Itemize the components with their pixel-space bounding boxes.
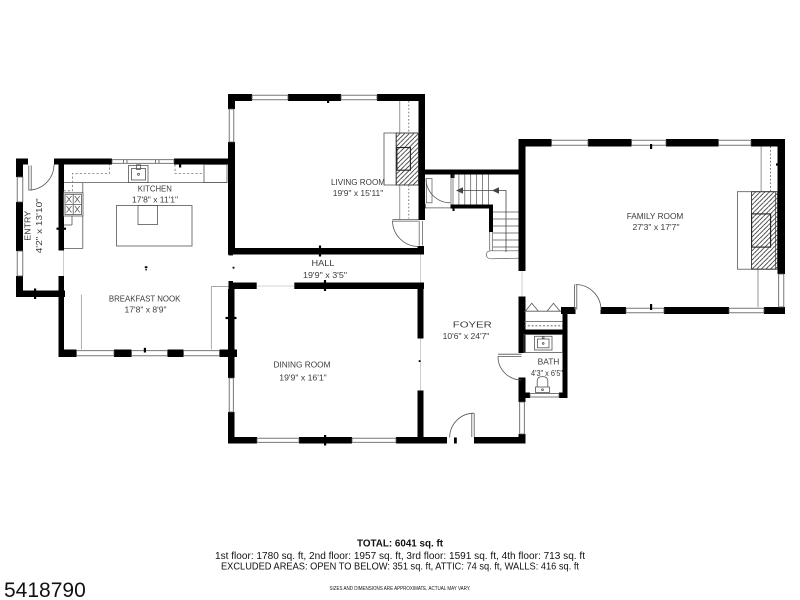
svg-text:5418790: 5418790	[4, 579, 86, 600]
svg-text:DINING ROOM: DINING ROOM	[274, 360, 331, 370]
svg-text:BATH: BATH	[538, 357, 560, 367]
svg-text:19'9" x 16'1": 19'9" x 16'1"	[279, 372, 327, 382]
svg-text:4'3" x 6'5": 4'3" x 6'5"	[531, 368, 563, 378]
svg-text:KITCHEN: KITCHEN	[138, 184, 172, 194]
svg-text:BREAKFAST NOOK: BREAKFAST NOOK	[109, 294, 181, 304]
svg-text:19'9" x 3'5": 19'9" x 3'5"	[303, 270, 347, 280]
svg-text:EXCLUDED AREAS: OPEN TO BELOW:: EXCLUDED AREAS: OPEN TO BELOW: 351 sq. f…	[221, 562, 579, 573]
svg-text:HALL: HALL	[312, 258, 335, 268]
svg-text:4'2" x 13'10": 4'2" x 13'10"	[34, 198, 44, 253]
svg-text:17'8" x 8'9": 17'8" x 8'9"	[125, 305, 167, 315]
svg-text:ENTRY: ENTRY	[23, 210, 33, 240]
svg-text:TOTAL: 6041 sq. ft: TOTAL: 6041 sq. ft	[357, 539, 444, 550]
svg-text:FAMILY ROOM: FAMILY ROOM	[627, 211, 684, 221]
svg-text:1st floor: 1780 sq. ft, 2nd fl: 1st floor: 1780 sq. ft, 2nd floor: 1957 …	[215, 551, 585, 562]
svg-text:27'3" x 17'7": 27'3" x 17'7"	[633, 222, 680, 232]
svg-text:FOYER: FOYER	[453, 320, 492, 330]
svg-text:19'9" x 15'11": 19'9" x 15'11"	[333, 188, 384, 198]
svg-text:17'8" x 11'1": 17'8" x 11'1"	[132, 195, 178, 205]
svg-text:10'6" x 24'7": 10'6" x 24'7"	[443, 331, 490, 341]
svg-text:SIZES AND DIMENSIONS ARE APPRO: SIZES AND DIMENSIONS ARE APPROXIMATE, AC…	[330, 586, 471, 592]
svg-text:LIVING ROOM: LIVING ROOM	[331, 177, 385, 187]
